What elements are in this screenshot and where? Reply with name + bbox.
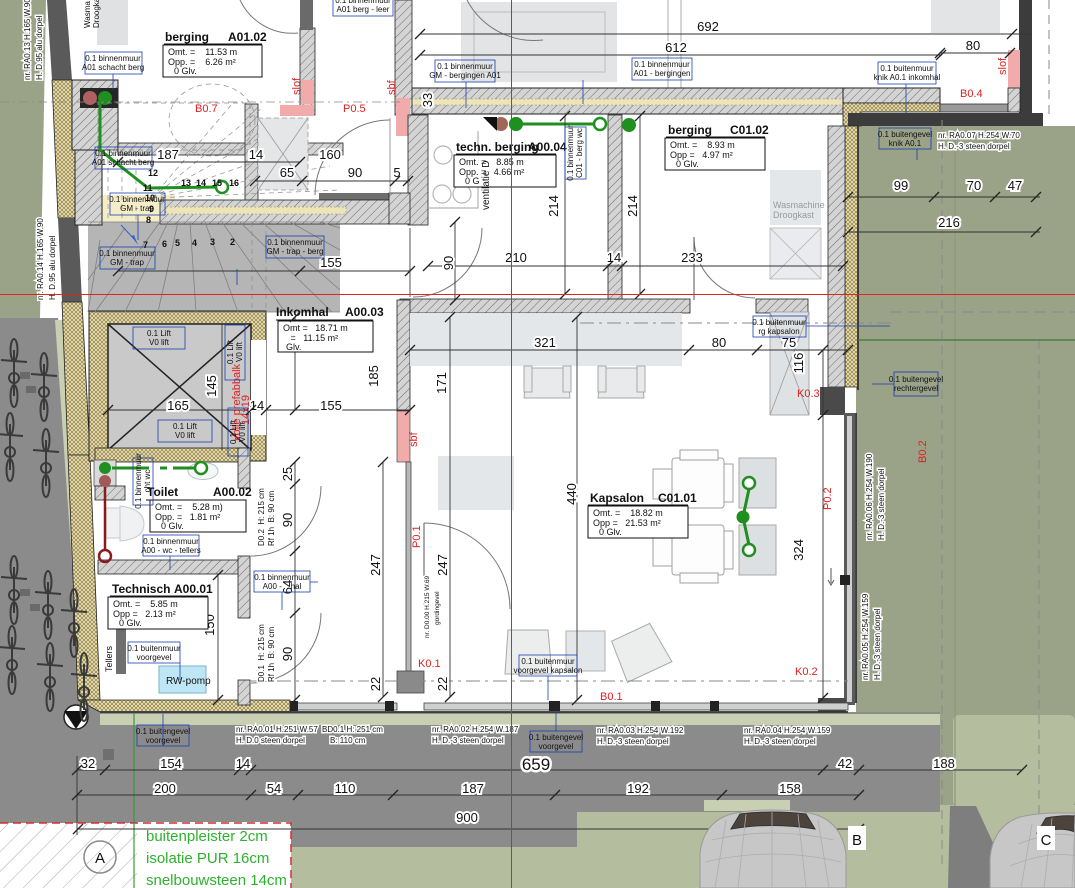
svg-text:0.1 binnenmuur: 0.1 binnenmuur: [634, 60, 690, 69]
svg-text:14: 14: [249, 147, 263, 162]
svg-text:0.1 binnenmuur: 0.1 binnenmuur: [143, 537, 199, 546]
svg-text:Omt. = 5.85 m: Omt. = 5.85 m: [113, 599, 178, 609]
svg-text:H. D.-3 steen dorpel: H. D.-3 steen dorpel: [873, 608, 882, 680]
svg-text:Droogkast: Droogkast: [773, 210, 815, 220]
svg-text:116: 116: [791, 353, 806, 374]
svg-text:Omt. = 11.53 m: Omt. = 11.53 m: [168, 47, 237, 57]
svg-text:0.1 buitengevel: 0.1 buitengevel: [529, 733, 583, 742]
svg-text:nr. RA0.01 H.251 W.57: nr. RA0.01 H.251 W.57: [236, 725, 318, 734]
svg-text:0 G: 0 G: [465, 176, 480, 186]
svg-text:A01 schacht berg: A01 schacht berg: [92, 158, 154, 167]
svg-text:214: 214: [625, 195, 640, 217]
svg-text:A01 - bergingen: A01 - bergingen: [634, 69, 691, 78]
svg-text:voorgevel: voorgevel: [539, 742, 574, 751]
svg-text:C01 - berg wc: C01 - berg wc: [575, 128, 584, 178]
svg-text:voorgevel: voorgevel: [137, 653, 172, 662]
svg-text:145: 145: [204, 375, 219, 397]
svg-text:192: 192: [627, 781, 649, 796]
svg-text:0.1 buitenmuur: 0.1 buitenmuur: [521, 657, 575, 666]
svg-text:6: 6: [162, 239, 167, 249]
svg-text:0.1 Lift: 0.1 Lift: [226, 339, 235, 364]
svg-text:K0.1: K0.1: [418, 658, 441, 670]
svg-text:0.1 Lift: 0.1 Lift: [147, 329, 172, 338]
svg-text:0.1 buitengevel: 0.1 buitengevel: [878, 130, 932, 139]
svg-text:4: 4: [192, 238, 197, 248]
svg-text:rg kapsalon: rg kapsalon: [758, 327, 799, 336]
svg-text:22: 22: [435, 677, 450, 691]
svg-text:nr. RA0.07 H.254 W.70: nr. RA0.07 H.254 W.70: [938, 131, 1020, 140]
svg-text:54: 54: [267, 781, 281, 796]
svg-text:440: 440: [564, 483, 579, 505]
svg-text:8: 8: [146, 215, 151, 225]
svg-text:187: 187: [157, 147, 179, 162]
svg-text:158: 158: [779, 781, 801, 796]
svg-text:nr. RA0.04 H.254 W.159: nr. RA0.04 H.254 W.159: [744, 726, 831, 735]
svg-text:247: 247: [368, 554, 383, 576]
svg-text:0.1 buitenmuur: 0.1 buitenmuur: [127, 644, 181, 653]
svg-text:16: 16: [229, 178, 239, 188]
svg-text:200: 200: [154, 781, 176, 796]
svg-text:Droogka: Droogka: [92, 0, 101, 28]
svg-text:Technisch: Technisch: [112, 582, 170, 596]
svg-text:H. D.-3 steen dorpel: H. D.-3 steen dorpel: [938, 142, 1010, 151]
svg-text:15: 15: [212, 178, 222, 188]
svg-text:154: 154: [160, 756, 182, 771]
svg-text:A01.02: A01.02: [228, 30, 267, 44]
svg-text:0.1 Lift: 0.1 Lift: [173, 422, 198, 431]
svg-text:0.1 buitenmuur: 0.1 buitenmuur: [752, 318, 806, 327]
svg-text:165: 165: [167, 398, 189, 413]
svg-text:33: 33: [420, 93, 435, 107]
svg-text:A01 schacht berg: A01 schacht berg: [82, 63, 144, 72]
svg-text:0.1 binnenmuur: 0.1 binnenmuur: [95, 149, 151, 158]
svg-text:0.1 binnenmuur: 0.1 binnenmuur: [134, 453, 143, 509]
svg-text:A00.02: A00.02: [213, 485, 252, 499]
svg-text:0 Glv.: 0 Glv.: [119, 618, 142, 628]
svg-text:0.1 binnenmuur: 0.1 binnenmuur: [267, 238, 323, 247]
svg-text:0 Glv.: 0 Glv.: [599, 527, 622, 537]
svg-text:Glv.: Glv.: [286, 342, 301, 352]
svg-text:RW-pomp: RW-pomp: [166, 676, 211, 687]
svg-text:C: C: [1041, 832, 1052, 849]
svg-text:0.1 binnenmuur: 0.1 binnenmuur: [85, 54, 141, 63]
svg-text:185: 185: [366, 365, 381, 387]
svg-text:42: 42: [838, 756, 852, 771]
svg-text:0.1 Lift: 0.1 Lift: [229, 419, 238, 444]
svg-text:B0.4: B0.4: [960, 88, 983, 100]
svg-text:H. D.95 alu dorpel: H. D.95 alu dorpel: [35, 15, 44, 80]
svg-text:Kapsalon: Kapsalon: [590, 491, 644, 505]
svg-text:14: 14: [607, 250, 621, 265]
svg-text:A00.03: A00.03: [345, 305, 384, 319]
svg-text:659: 659: [522, 755, 550, 774]
svg-text:nr. RA0.02 H.254 W.187: nr. RA0.02 H.254 W.187: [432, 725, 519, 734]
svg-text:H. D.0 steen dorpel: H. D.0 steen dorpel: [236, 736, 305, 745]
svg-text:A00.04: A00.04: [528, 140, 567, 154]
svg-text:321: 321: [534, 335, 556, 350]
svg-text:nr. RA0.13 H.165 W.90: nr. RA0.13 H.165 W.90: [23, 0, 32, 80]
svg-text:BD0.1 H: 251 cm: BD0.1 H: 251 cm: [322, 725, 383, 734]
svg-text:A01 berg - leer: A01 berg - leer: [337, 5, 390, 14]
svg-text:K0.3: K0.3: [797, 388, 820, 400]
svg-text:32: 32: [81, 756, 95, 771]
svg-text:nr. RA0.14 H.165 W.90: nr. RA0.14 H.165 W.90: [36, 218, 45, 300]
svg-text:A00 - wc - tellers: A00 - wc - tellers: [141, 546, 201, 555]
svg-text:90: 90: [280, 513, 295, 527]
svg-text:knik A0.1: knik A0.1: [889, 139, 922, 148]
svg-text:slof: slof: [291, 77, 303, 95]
svg-text:B0.1: B0.1: [600, 691, 623, 703]
svg-text:B: 110 cm: B: 110 cm: [330, 736, 366, 745]
svg-text:5: 5: [393, 165, 400, 180]
svg-text:233: 233: [681, 250, 703, 265]
svg-text:324: 324: [791, 539, 806, 561]
svg-text:GM - trap - berg: GM - trap - berg: [267, 247, 324, 256]
svg-text:Wasmachine: Wasmachine: [773, 200, 825, 210]
svg-text:5: 5: [175, 238, 180, 248]
svg-text:14: 14: [196, 178, 206, 188]
svg-text:B0.2: B0.2: [917, 440, 929, 463]
svg-text:V0 lift: V0 lift: [238, 421, 247, 442]
svg-text:90: 90: [348, 165, 362, 180]
svg-text:buitenpleister 2cm: buitenpleister 2cm: [146, 828, 268, 845]
svg-text:nr. D0.00 H.215 W.69: nr. D0.00 H.215 W.69: [424, 575, 431, 638]
svg-text:0 Glv.: 0 Glv.: [676, 159, 699, 169]
svg-text:Rf 1h B: 90 cm: Rf 1h B: 90 cm: [267, 491, 276, 546]
svg-text:80: 80: [712, 335, 726, 350]
svg-text:A00 - hal: A00 - hal: [263, 582, 302, 591]
svg-text:nr. RA0.05 H.254 W.159: nr. RA0.05 H.254 W.159: [861, 593, 870, 680]
svg-text:0 Glv.: 0 Glv.: [161, 521, 184, 531]
svg-text:90: 90: [280, 647, 295, 661]
svg-text:Wasma: Wasma: [83, 1, 92, 28]
svg-text:12: 12: [148, 168, 158, 178]
svg-text:188: 188: [933, 756, 955, 771]
svg-text:Tellers: Tellers: [104, 645, 114, 672]
svg-text:nr. RA0.06 H.254 W.190: nr. RA0.06 H.254 W.190: [865, 453, 874, 540]
svg-text:V0 lift: V0 lift: [149, 338, 170, 347]
svg-text:sbf: sbf: [408, 431, 420, 447]
svg-text:25: 25: [280, 467, 295, 481]
svg-text:GM - trap: GM - trap: [110, 258, 144, 267]
svg-text:H. D.-3 steen dorpel: H. D.-3 steen dorpel: [597, 737, 669, 746]
svg-text:0.1 buitenmuur: 0.1 buitenmuur: [880, 64, 934, 73]
svg-text:14: 14: [236, 756, 250, 771]
svg-text:Rf 1h B: 90 cm: Rf 1h B: 90 cm: [267, 627, 276, 682]
svg-text:H. D.-3 steen dorpel: H. D.-3 steen dorpel: [432, 736, 504, 745]
svg-text:H. D.-3 steen dorpel: H. D.-3 steen dorpel: [744, 737, 816, 746]
svg-text:187: 187: [462, 781, 484, 796]
svg-text:155: 155: [320, 255, 342, 270]
svg-text:H. D.-3 steen dorpel: H. D.-3 steen dorpel: [877, 468, 886, 540]
svg-text:berging: berging: [165, 30, 209, 44]
svg-text:47: 47: [1008, 178, 1022, 193]
svg-text:rechtergevel: rechtergevel: [894, 384, 938, 393]
svg-text:gordingevel: gordingevel: [434, 591, 441, 625]
svg-text:0 Glv.: 0 Glv.: [174, 66, 197, 76]
svg-text:knik A0.1 inkomhal: knik A0.1 inkomhal: [874, 73, 941, 82]
svg-text:K0.2: K0.2: [795, 666, 818, 678]
svg-text:13: 13: [181, 178, 191, 188]
svg-text:2: 2: [230, 237, 235, 247]
svg-text:0.1 binnenmuur: 0.1 binnenmuur: [437, 62, 493, 71]
svg-text:692: 692: [697, 19, 719, 34]
svg-text:slof: slof: [997, 57, 1009, 75]
svg-text:P0.5: P0.5: [343, 103, 366, 115]
svg-text:0.1 buitengevel: 0.1 buitengevel: [889, 375, 943, 384]
svg-text:B0.7: B0.7: [195, 103, 218, 115]
svg-text:voorgevel kapsalon: voorgevel kapsalon: [514, 666, 583, 675]
svg-text:65: 65: [280, 165, 294, 180]
svg-text:Omt. = 5.28 m): Omt. = 5.28 m): [155, 502, 223, 512]
svg-text:171: 171: [434, 372, 449, 394]
svg-text:0.1 binnenmuur: 0.1 binnenmuur: [109, 195, 165, 204]
svg-text:D0.1 H: 215 cm: D0.1 H: 215 cm: [257, 624, 266, 682]
svg-text:Omt. = 18.82 m: Omt. = 18.82 m: [593, 508, 663, 518]
svg-text:110: 110: [335, 781, 356, 796]
svg-text:80: 80: [966, 38, 980, 53]
svg-text:90: 90: [441, 256, 456, 270]
svg-text:techn. berging: techn. berging: [456, 140, 539, 154]
svg-text:3: 3: [210, 237, 215, 247]
svg-text:H. D.95 alu dorpel: H. D.95 alu dorpel: [48, 235, 57, 300]
svg-text:Omt = 18.71 m: Omt = 18.71 m: [283, 323, 348, 333]
svg-text:GM - bergingen A01: GM - bergingen A01: [429, 71, 501, 80]
svg-text:Omt. = 8.93 m: Omt. = 8.93 m: [670, 140, 735, 150]
svg-text:berging: berging: [668, 123, 712, 137]
svg-text:isolatie PUR 16cm: isolatie PUR 16cm: [146, 850, 269, 867]
svg-text:snelbouwsteen 14cm: snelbouwsteen 14cm: [146, 872, 287, 888]
svg-text:0.1 binnenmuur: 0.1 binnenmuur: [99, 249, 155, 258]
svg-text:99: 99: [894, 178, 908, 193]
svg-text:C01.02: C01.02: [730, 123, 769, 137]
svg-text:70: 70: [967, 178, 981, 193]
svg-text:22: 22: [368, 677, 383, 691]
svg-text:A00.01: A00.01: [174, 582, 213, 596]
svg-text:0.1 binnenmuur: 0.1 binnenmuur: [566, 125, 575, 181]
svg-text:P0.1: P0.1: [411, 525, 423, 548]
svg-text:A: A: [95, 850, 105, 867]
svg-text:10: 10: [145, 193, 155, 203]
svg-text:7: 7: [143, 240, 148, 250]
svg-text:900: 900: [456, 810, 478, 825]
svg-text:0.1 binnenmuur: 0.1 binnenmuur: [254, 573, 310, 582]
svg-text:612: 612: [665, 40, 687, 55]
svg-text:nr. RA0.03 H.254 W.192: nr. RA0.03 H.254 W.192: [597, 726, 684, 735]
svg-text:155: 155: [320, 398, 342, 413]
svg-text:C01.01: C01.01: [658, 491, 697, 505]
svg-text:216: 216: [938, 215, 960, 230]
svg-text:247: 247: [435, 554, 450, 576]
svg-text:P0.2: P0.2: [822, 487, 834, 510]
svg-text:V0 lift: V0 lift: [175, 431, 196, 440]
svg-text:V0 lift: V0 lift: [235, 341, 244, 362]
svg-text:D0.2 H: 215 cm: D0.2 H: 215 cm: [257, 488, 266, 546]
svg-text:9: 9: [149, 204, 154, 214]
svg-text:160: 160: [319, 147, 341, 162]
svg-text:cht wc: cht wc: [143, 470, 152, 493]
svg-text:ventilatie D: ventilatie D: [481, 161, 492, 210]
svg-text:11: 11: [143, 183, 153, 193]
svg-text:Inkomhal: Inkomhal: [276, 305, 329, 319]
svg-text:B: B: [852, 832, 862, 849]
svg-text:210: 210: [505, 250, 527, 265]
svg-text:214: 214: [546, 195, 561, 217]
svg-text:sbf: sbf: [386, 79, 398, 95]
